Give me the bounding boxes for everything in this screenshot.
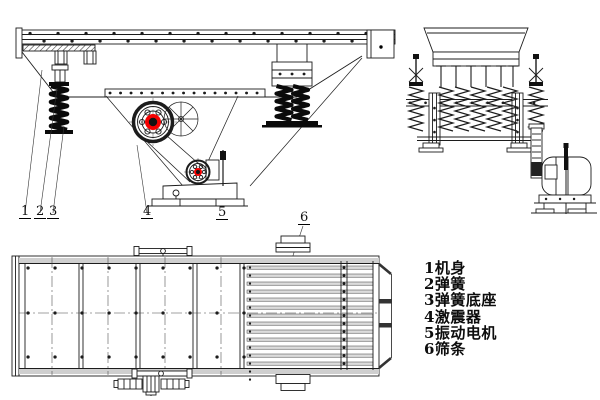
- plan-view: [12, 236, 392, 396]
- callout-1: 1: [19, 205, 31, 219]
- parts-legend: 1机身 2弹簧 3弹簧底座 4激震器 5振动电机 6筛条: [424, 260, 497, 357]
- legend-item-2: 2弹簧: [424, 276, 497, 292]
- bottom-chute-stub: [276, 375, 310, 391]
- legend-item-1: 1机身: [424, 260, 497, 276]
- side-view: [16, 28, 395, 291]
- top-bracket: [134, 247, 192, 257]
- callout-5: 5: [216, 206, 228, 220]
- drawing-canvas: [0, 0, 600, 400]
- legend-item-6: 6筛条: [424, 341, 497, 357]
- grid-bars: [436, 66, 518, 87]
- hopper: [424, 28, 528, 66]
- vibration-motor-assembly: [148, 150, 248, 206]
- fan-wheel: [164, 102, 198, 136]
- end-view-motor: [529, 124, 597, 214]
- callout-4: 4: [141, 205, 153, 219]
- spring-left-assembly: [45, 65, 73, 134]
- end-view: [406, 28, 597, 214]
- legend-item-3: 3弹簧底座: [424, 292, 497, 308]
- discharge-end: [379, 264, 392, 368]
- legend-item-4: 4激震器: [424, 309, 497, 325]
- legend-item-5: 5振动电机: [424, 325, 497, 341]
- spring-right-assembly: [262, 62, 322, 128]
- callout-2: 2: [34, 205, 46, 219]
- callout-6: 6: [298, 211, 310, 225]
- callout-3: 3: [47, 205, 59, 219]
- technical-drawing-page: 1 2 3 4 5 6 1机身 2弹簧 3弹簧底座 4激震器 5振动电机 6筛条: [0, 0, 600, 400]
- top-chute-stub: [276, 236, 310, 252]
